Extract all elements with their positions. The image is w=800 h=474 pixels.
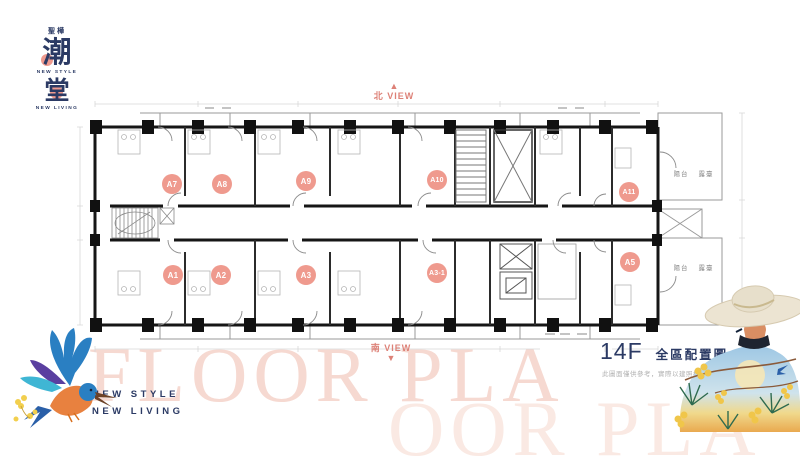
unit-label-a11: A11 (619, 182, 639, 202)
unit-label-a3-1: A3-1 (427, 263, 447, 283)
unit-label-a3: A3 (296, 265, 316, 285)
poster-canvas: { "logo": { "top_text": "聖樺", "glyph1": … (0, 0, 800, 432)
unit-label-a1: A1 (163, 265, 183, 285)
kingfisher-bird-illustration (8, 326, 123, 432)
brand-name-small: 聖樺 (24, 26, 90, 36)
logo-glyph-chao: 潮 (42, 39, 71, 68)
man-in-hat-illustration (660, 273, 800, 432)
plan-annotation: 露臺 (699, 168, 714, 178)
plan-annotation: 陽台 (674, 168, 689, 178)
unit-label-a7: A7 (162, 174, 182, 194)
south-arrow-icon: ▼ (369, 354, 413, 364)
north-view-label: 北 VIEW (372, 92, 416, 102)
plan-annotation: 陽台 (674, 262, 689, 272)
logo-tagline-living: NEW LIVING (24, 106, 90, 111)
brand-logo: 聖樺 潮 NEW STYLE 堂 NEW LIVING (24, 26, 90, 111)
unit-label-a5: A5 (620, 252, 640, 272)
unit-label-a8: A8 (212, 174, 232, 194)
unit-label-a2: A2 (211, 265, 231, 285)
plan-annotation: 露臺 (699, 262, 714, 272)
floor-number: 14F (600, 338, 643, 365)
unit-label-a10: A10 (427, 170, 447, 190)
unit-label-a9: A9 (296, 171, 316, 191)
south-view-marker: 南 VIEW ▼ (369, 344, 413, 364)
logo-glyph-tang: 堂 (44, 79, 69, 104)
north-view-marker: ▲ 北 VIEW (372, 82, 416, 102)
